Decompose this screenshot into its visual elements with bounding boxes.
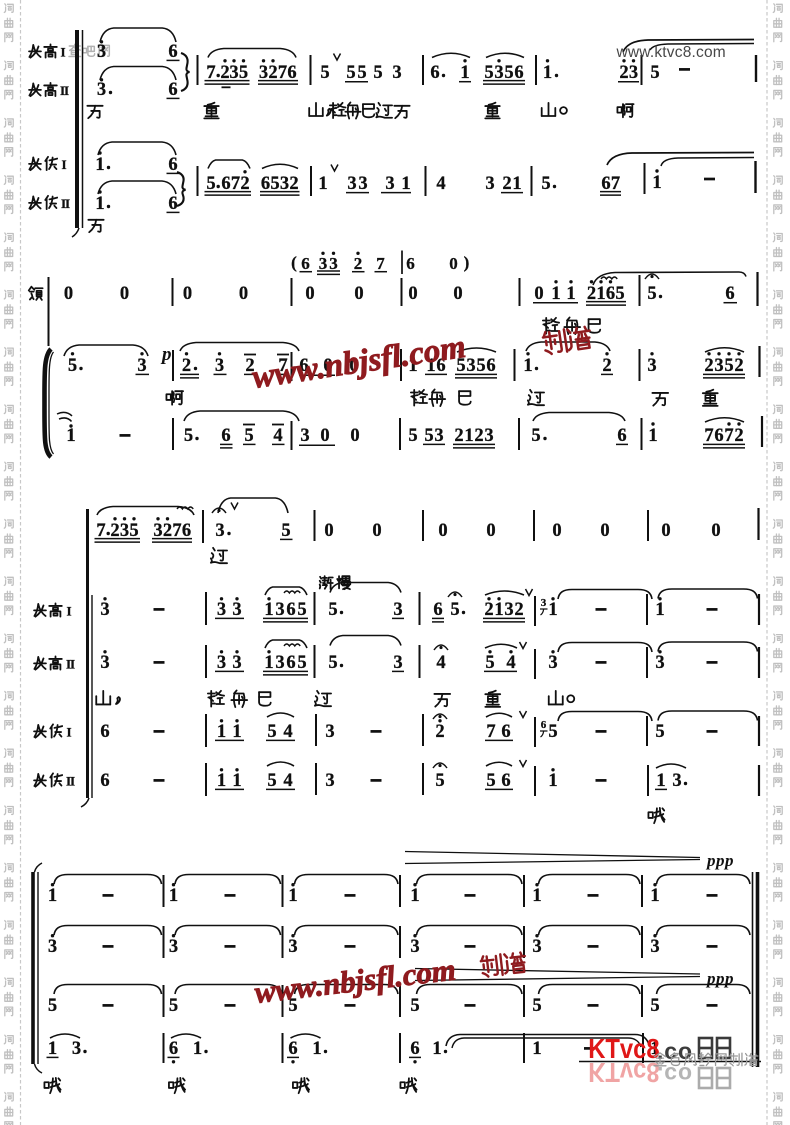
svg-text:5: 5 [68, 356, 77, 376]
svg-text:1: 1 [48, 886, 57, 906]
svg-text:5: 5 [346, 63, 355, 83]
svg-text:3: 3 [232, 653, 241, 673]
svg-text:5: 5 [328, 653, 337, 673]
svg-text:3: 3 [169, 937, 178, 957]
svg-text:3: 3 [504, 600, 513, 620]
svg-text:3: 3 [629, 63, 638, 83]
svg-text:5: 5 [297, 600, 306, 620]
svg-text:1: 1 [532, 1039, 541, 1059]
svg-text:3: 3 [72, 1039, 81, 1059]
svg-text:0: 0 [64, 284, 73, 304]
svg-text:3: 3 [410, 937, 419, 957]
svg-text:5: 5 [476, 356, 485, 376]
svg-text:5: 5 [244, 426, 253, 446]
svg-text:5: 5 [724, 356, 733, 376]
svg-text:1: 1 [548, 600, 557, 620]
svg-text:2: 2 [602, 356, 611, 376]
svg-text:1: 1 [95, 194, 104, 214]
svg-text:6: 6 [301, 254, 310, 273]
svg-text:3: 3 [100, 600, 109, 620]
svg-text:3: 3 [714, 356, 723, 376]
svg-text:5: 5 [408, 426, 417, 446]
svg-text:5: 5 [650, 63, 659, 83]
svg-text:5: 5 [169, 996, 178, 1016]
svg-text:3: 3 [232, 600, 241, 620]
svg-text:1: 1 [432, 1039, 441, 1059]
svg-text:2: 2 [514, 600, 523, 620]
svg-text:2: 2 [484, 600, 493, 620]
svg-text:2: 2 [619, 63, 628, 83]
svg-text:0: 0 [661, 521, 670, 541]
svg-text:7: 7 [376, 254, 385, 273]
svg-text:5: 5 [485, 653, 494, 673]
svg-text:0: 0 [453, 284, 462, 304]
svg-text:1: 1 [288, 886, 297, 906]
svg-text:5: 5 [647, 284, 656, 304]
svg-text:3: 3 [325, 771, 334, 791]
svg-text:3: 3 [325, 722, 334, 742]
svg-text:ppp: ppp [705, 851, 734, 870]
svg-text:6: 6 [501, 722, 510, 742]
svg-text:1: 1 [217, 722, 226, 742]
svg-text:2: 2 [734, 356, 743, 376]
svg-text:5: 5 [548, 722, 557, 742]
svg-text:5: 5 [650, 996, 659, 1016]
svg-text:6: 6 [286, 600, 295, 620]
svg-text:6: 6 [168, 194, 177, 214]
svg-text:1: 1 [232, 722, 241, 742]
svg-text:II: II [66, 774, 75, 789]
svg-text:6: 6 [617, 426, 626, 446]
svg-text:3: 3 [532, 937, 541, 957]
svg-text:1: 1 [656, 771, 665, 791]
svg-text:1: 1 [512, 174, 521, 194]
svg-text:0: 0 [239, 284, 248, 304]
svg-text:5: 5 [373, 63, 382, 83]
svg-text:2: 2 [734, 426, 743, 446]
svg-text:6: 6 [725, 284, 734, 304]
svg-text:3: 3 [484, 426, 493, 446]
svg-text:6: 6 [541, 719, 547, 731]
svg-text:0: 0 [600, 521, 609, 541]
svg-text:6: 6 [100, 722, 109, 742]
svg-text:6: 6 [406, 254, 415, 273]
svg-text:6: 6 [286, 653, 295, 673]
svg-text:1: 1 [95, 155, 104, 175]
svg-text:6: 6 [430, 63, 439, 83]
svg-text:3: 3 [655, 653, 664, 673]
svg-text:1: 1 [232, 771, 241, 791]
svg-text:0: 0 [320, 426, 329, 446]
svg-text:3: 3 [275, 653, 284, 673]
svg-text:0: 0 [324, 521, 333, 541]
svg-text:1: 1 [532, 886, 541, 906]
svg-text:2: 2 [502, 174, 511, 194]
svg-text:3: 3 [347, 174, 356, 194]
svg-text:I: I [66, 604, 71, 619]
svg-text:5: 5 [320, 63, 329, 83]
svg-text:0: 0 [486, 521, 495, 541]
svg-text:1: 1 [401, 174, 410, 194]
svg-text:1: 1 [217, 771, 226, 791]
svg-text:1: 1 [464, 426, 473, 446]
svg-text:6: 6 [433, 600, 442, 620]
svg-text:I: I [61, 157, 66, 172]
svg-text:(: ( [291, 253, 297, 272]
svg-text:5: 5 [541, 174, 550, 194]
svg-text:3: 3 [97, 42, 106, 62]
svg-text:7: 7 [724, 426, 733, 446]
svg-text:4: 4 [283, 722, 292, 742]
svg-text:.co: .co [657, 1038, 692, 1064]
svg-text:3: 3 [385, 174, 394, 194]
svg-text:5: 5 [450, 600, 459, 620]
svg-text:7: 7 [486, 722, 495, 742]
svg-text:5: 5 [655, 722, 664, 742]
svg-text:2: 2 [474, 426, 483, 446]
svg-text:5: 5 [184, 426, 193, 446]
svg-text:0: 0 [534, 284, 543, 304]
svg-text:1: 1 [548, 771, 557, 791]
svg-text:1: 1 [652, 173, 661, 193]
svg-text:3: 3 [329, 254, 338, 273]
svg-text:3: 3 [485, 174, 494, 194]
svg-text:3: 3 [217, 653, 226, 673]
svg-text:2: 2 [435, 722, 444, 742]
svg-text:3: 3 [275, 600, 284, 620]
svg-text:3: 3 [288, 937, 297, 957]
svg-text:1: 1 [264, 653, 273, 673]
svg-text:KTvc8: KTvc8 [588, 1057, 659, 1089]
svg-text:5: 5 [267, 722, 276, 742]
svg-text:2: 2 [182, 356, 191, 376]
svg-text:1: 1 [312, 1039, 321, 1059]
svg-text:0: 0 [408, 284, 417, 304]
svg-text:3: 3 [97, 80, 106, 100]
svg-text:3: 3 [100, 653, 109, 673]
svg-text:6: 6 [410, 1039, 419, 1059]
svg-text:2: 2 [454, 426, 463, 446]
svg-text:5: 5 [532, 996, 541, 1016]
svg-text:6: 6 [501, 771, 510, 791]
svg-text:0: 0 [552, 521, 561, 541]
svg-text:3: 3 [319, 254, 328, 273]
svg-text:5: 5 [281, 521, 290, 541]
svg-text:3: 3 [215, 521, 224, 541]
svg-text:4: 4 [273, 426, 282, 446]
svg-text:6: 6 [168, 80, 177, 100]
svg-text:6: 6 [168, 42, 177, 62]
svg-text:0: 0 [183, 284, 192, 304]
svg-text:6: 6 [168, 155, 177, 175]
svg-text:1: 1 [655, 600, 664, 620]
svg-text:1: 1 [169, 886, 178, 906]
svg-text:3: 3 [358, 174, 367, 194]
svg-text:1: 1 [494, 600, 503, 620]
svg-text:3: 3 [137, 356, 146, 376]
svg-text:1: 1 [318, 174, 327, 194]
svg-text:1: 1 [66, 426, 75, 446]
svg-text:5: 5 [410, 996, 419, 1016]
svg-text:0: 0 [350, 426, 359, 446]
svg-text:6: 6 [169, 1039, 178, 1059]
svg-text:2: 2 [704, 356, 713, 376]
svg-text:5: 5 [328, 600, 337, 620]
svg-text:4: 4 [283, 771, 292, 791]
svg-text:2: 2 [354, 254, 363, 273]
svg-text:1: 1 [264, 600, 273, 620]
svg-text:1: 1 [460, 63, 469, 83]
svg-text:3: 3 [215, 356, 224, 376]
svg-text:1: 1 [650, 886, 659, 906]
svg-text:0: 0 [120, 284, 129, 304]
svg-text:6: 6 [221, 426, 230, 446]
svg-text:6: 6 [714, 426, 723, 446]
svg-text:7: 7 [704, 426, 713, 446]
svg-text:5: 5 [486, 771, 495, 791]
svg-text:3: 3 [548, 653, 557, 673]
svg-text:0: 0 [372, 521, 381, 541]
svg-text:p: p [160, 344, 172, 365]
svg-text:1: 1 [566, 284, 575, 304]
svg-text:II: II [66, 657, 75, 672]
svg-text:3: 3 [300, 426, 309, 446]
svg-text:4: 4 [436, 174, 445, 194]
svg-text:3: 3 [672, 771, 681, 791]
svg-text:II: II [60, 83, 69, 98]
svg-text:3: 3 [392, 63, 401, 83]
svg-text:6: 6 [486, 356, 495, 376]
svg-text:0: 0 [438, 521, 447, 541]
svg-text:5: 5 [531, 426, 540, 446]
svg-text:1: 1 [523, 356, 532, 376]
svg-text:0: 0 [305, 284, 314, 304]
svg-text:5: 5 [267, 771, 276, 791]
svg-text:3: 3 [48, 937, 57, 957]
svg-text:): ) [464, 253, 470, 272]
svg-text:3: 3 [217, 600, 226, 620]
svg-text:6: 6 [288, 1039, 297, 1059]
svg-text:1: 1 [648, 426, 657, 446]
svg-text:I: I [66, 725, 71, 740]
svg-text:1: 1 [551, 284, 560, 304]
svg-text:3: 3 [393, 653, 402, 673]
svg-text:1: 1 [410, 886, 419, 906]
svg-text:3: 3 [650, 937, 659, 957]
svg-text:1: 1 [543, 63, 552, 83]
svg-text:3: 3 [434, 426, 443, 446]
svg-text:6: 6 [100, 771, 109, 791]
svg-text:5: 5 [297, 653, 306, 673]
svg-text:1: 1 [193, 1039, 202, 1059]
svg-text:3: 3 [393, 600, 402, 620]
svg-text:4: 4 [436, 653, 445, 673]
svg-text:0: 0 [449, 254, 458, 273]
svg-text:3: 3 [466, 356, 475, 376]
svg-text:1: 1 [48, 1039, 57, 1059]
svg-text:4: 4 [506, 653, 515, 673]
svg-text:I: I [60, 45, 65, 60]
svg-text:www.ktvc8.com: www.ktvc8.com [616, 44, 726, 61]
svg-text:5: 5 [357, 63, 366, 83]
svg-text:3: 3 [647, 356, 656, 376]
svg-text:3: 3 [541, 597, 547, 609]
svg-text:II: II [61, 196, 70, 211]
svg-text:5: 5 [424, 426, 433, 446]
svg-text:0: 0 [711, 521, 720, 541]
svg-text:0: 0 [354, 284, 363, 304]
svg-text:5: 5 [48, 996, 57, 1016]
svg-text:5: 5 [435, 771, 444, 791]
